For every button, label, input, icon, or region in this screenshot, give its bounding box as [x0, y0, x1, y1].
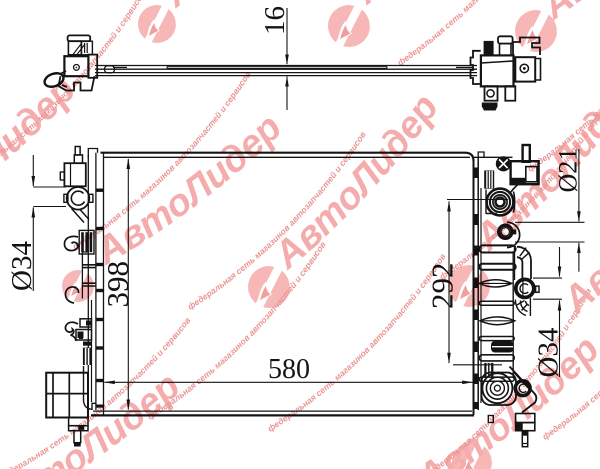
svg-text:16: 16 [259, 6, 291, 35]
svg-text:580: 580 [268, 354, 310, 385]
svg-text:Ø34: Ø34 [6, 241, 38, 291]
